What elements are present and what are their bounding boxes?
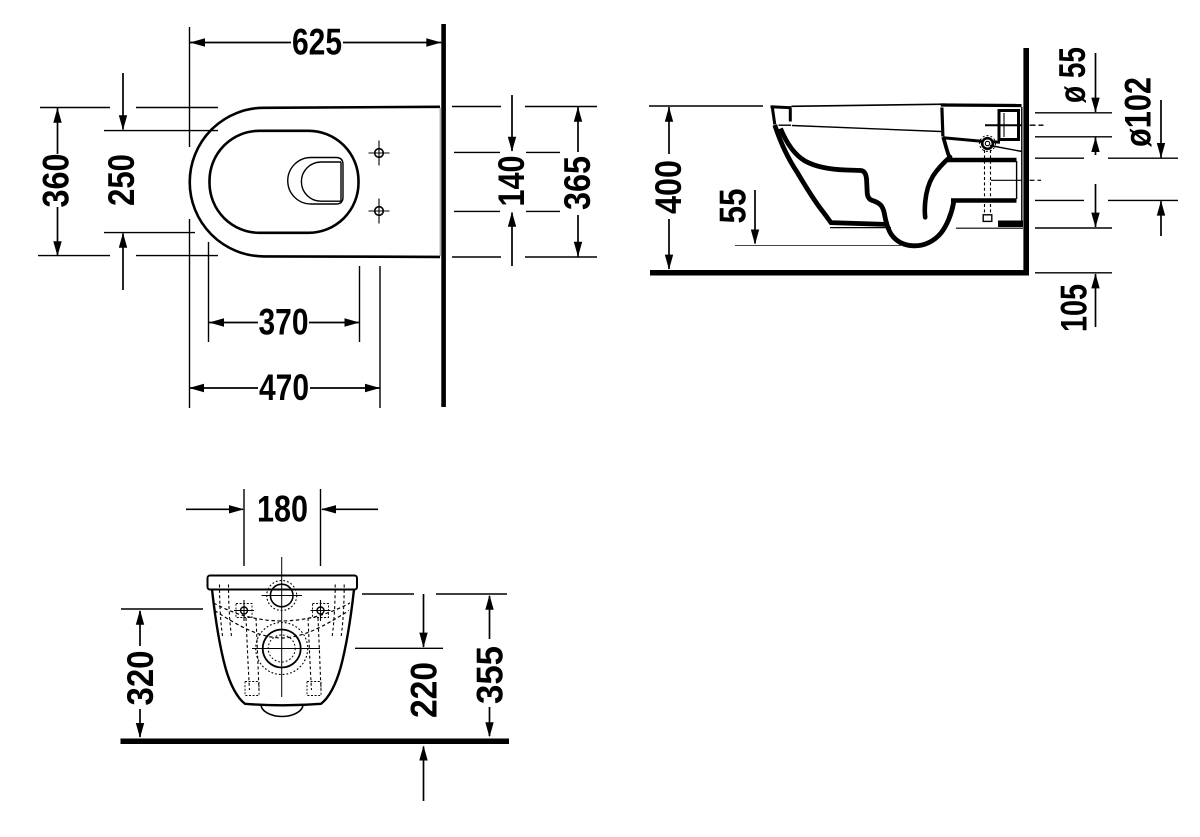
svg-text:625: 625 [292, 22, 342, 63]
svg-text:140: 140 [491, 156, 532, 207]
svg-text:220: 220 [404, 662, 445, 718]
svg-text:180: 180 [257, 488, 308, 529]
svg-text:ø102: ø102 [1118, 77, 1159, 147]
svg-text:470: 470 [259, 367, 309, 408]
svg-text:365: 365 [557, 156, 598, 210]
svg-text:360: 360 [36, 154, 77, 208]
svg-text:400: 400 [648, 160, 689, 214]
svg-text:250: 250 [101, 154, 142, 206]
svg-text:105: 105 [1054, 284, 1095, 332]
svg-text:355: 355 [470, 646, 511, 704]
svg-text:320: 320 [120, 651, 161, 706]
svg-text:55: 55 [713, 189, 754, 224]
svg-text:370: 370 [259, 302, 309, 343]
svg-text:ø 55: ø 55 [1052, 47, 1093, 103]
